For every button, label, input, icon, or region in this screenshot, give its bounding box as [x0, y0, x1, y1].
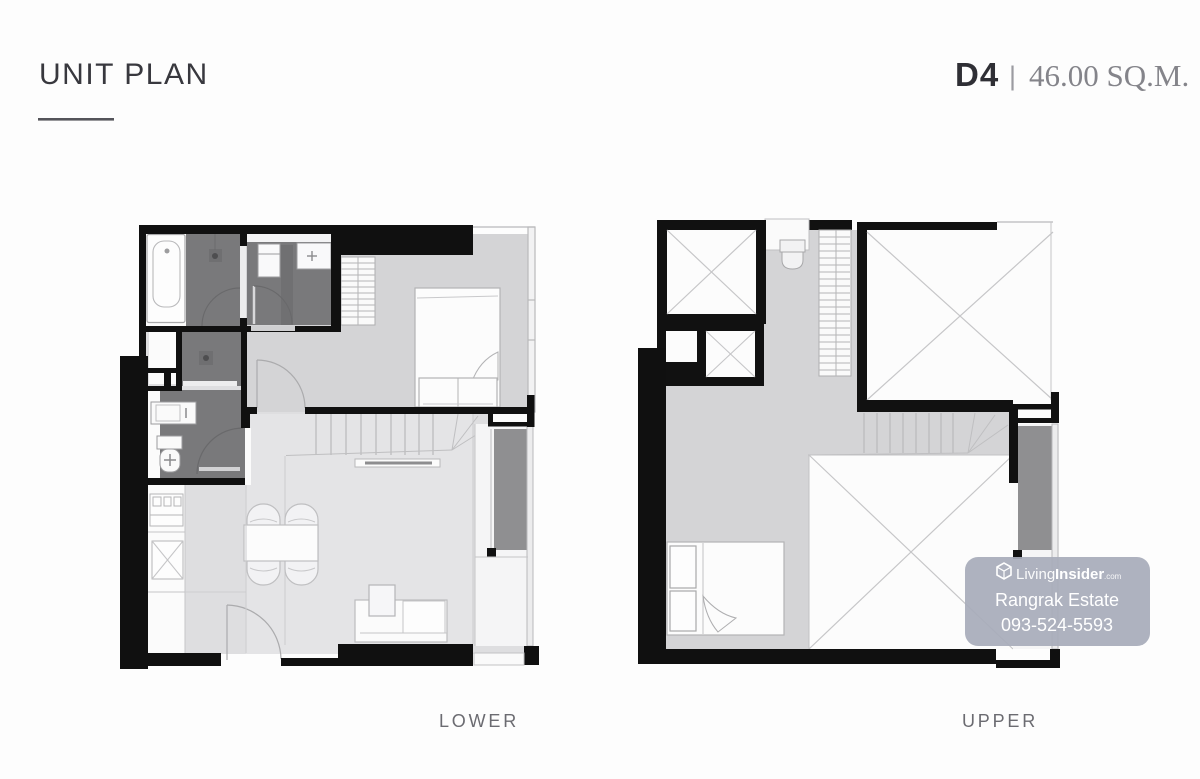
svg-text:46.00 SQ.M.: 46.00 SQ.M. [1029, 58, 1189, 93]
svg-text:LOWER: LOWER [439, 711, 519, 731]
svg-text:UPPER: UPPER [962, 711, 1038, 731]
svg-text:093-524-5593: 093-524-5593 [1001, 615, 1113, 635]
svg-text:|: | [1009, 61, 1016, 91]
svg-text:Living: Living [1016, 566, 1055, 583]
svg-text:Rangrak Estate: Rangrak Estate [995, 590, 1119, 610]
svg-text:UNIT PLAN: UNIT PLAN [39, 58, 209, 91]
svg-text:D4: D4 [955, 56, 999, 93]
svg-text:.com: .com [1104, 572, 1122, 581]
svg-text:Insider: Insider [1055, 566, 1104, 583]
